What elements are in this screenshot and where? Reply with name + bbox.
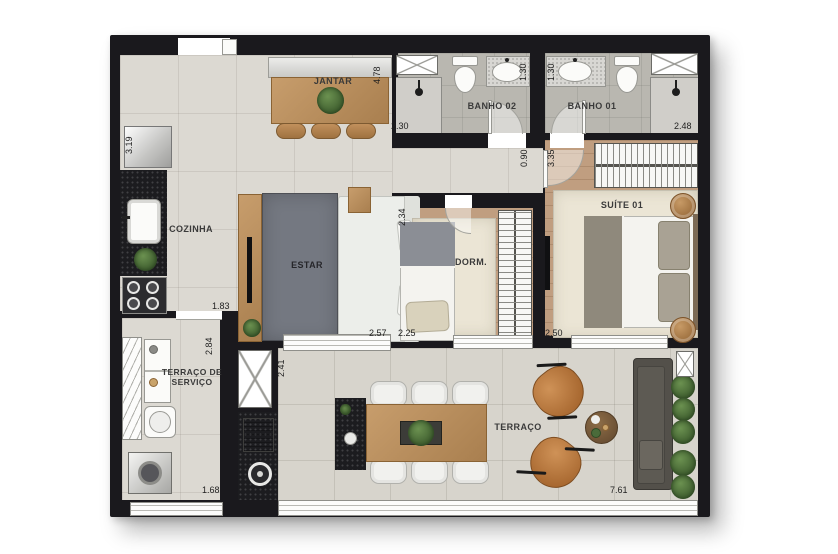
entry-door-leaf — [222, 39, 237, 55]
dim-suite-width: 2.50 — [545, 328, 563, 338]
window-terraco-bottom — [278, 500, 698, 516]
dim-banho02-width: 2.30 — [391, 121, 409, 131]
room-label-jantar: JANTAR — [290, 76, 376, 87]
room-label-banho01: BANHO 01 — [552, 101, 632, 112]
dim-servico-depth: 2.84 — [204, 327, 214, 355]
stool-2 — [311, 123, 341, 139]
room-label-cozinha: COZINHA — [158, 224, 224, 235]
stove-burner-3 — [127, 297, 140, 310]
bed-suite-blanket — [584, 216, 624, 328]
stove-burner-1 — [127, 281, 140, 294]
shaft-banho01 — [651, 53, 698, 75]
plant-estar — [243, 319, 261, 337]
plant-kitchen — [134, 248, 157, 271]
side-table — [348, 187, 371, 213]
room-label-servico-line2: SERVIÇO — [152, 377, 232, 387]
louver-panel — [122, 337, 142, 440]
faucet-icon-b02 — [505, 58, 509, 62]
side-table-bowl — [591, 428, 601, 438]
bed-suite-pillow-1 — [658, 221, 690, 270]
window-suite-terraco — [571, 335, 668, 349]
laundry-tank-basin — [149, 411, 171, 433]
counter-plate — [344, 432, 357, 445]
terrace-plant-5 — [671, 475, 695, 499]
dim-suite-depth: 3.35 — [546, 141, 556, 167]
terrace-plant-1 — [671, 375, 695, 399]
shower-arm-b01 — [675, 80, 677, 89]
shower-head-icon-b02 — [415, 88, 423, 96]
dim-dorm-depth: 2.34 — [397, 198, 407, 226]
dim-fridge-niche: 3.19 — [124, 124, 134, 154]
closet-suite — [594, 143, 698, 188]
shaft-terraco — [676, 351, 694, 377]
floorplan-canvas: JANTAR COZINHA TERRAÇO DE SERVIÇO ESTAR — [0, 0, 838, 554]
terrace-plant-4 — [670, 450, 696, 476]
tv-suite — [545, 236, 550, 290]
closet-dorm — [498, 210, 532, 340]
counter-plant — [340, 404, 351, 415]
pouf-suite-top — [670, 193, 696, 219]
room-label-servico-line1: TERRAÇO DE — [152, 367, 232, 377]
window-servico-bottom — [130, 502, 223, 516]
outdoor-sofa-cushion — [639, 440, 663, 470]
dim-jantar-depth: 4.78 — [372, 52, 382, 84]
door-dorm — [445, 195, 472, 208]
dim-hall-width: 0.90 — [519, 141, 529, 167]
shower-arm-b02 — [418, 80, 420, 89]
stool-1 — [276, 123, 306, 139]
shaft-column — [238, 350, 272, 408]
dim-banho01-side: 1.30 — [546, 55, 556, 81]
terrace-plant-2 — [672, 398, 695, 421]
room-label-suite: SUÍTE 01 — [582, 200, 662, 211]
bar-sink-drain — [257, 471, 263, 477]
tv — [247, 237, 252, 303]
kitchen-sink — [127, 199, 161, 244]
toilet-tank-b01 — [614, 56, 640, 66]
dim-dorm-width: 2.25 — [398, 328, 416, 338]
room-label-banho02: BANHO 02 — [452, 101, 532, 112]
grill — [243, 418, 274, 452]
faucet-icon-b01 — [573, 58, 577, 62]
toilet-tank-b02 — [452, 56, 478, 66]
pouf-suite-bottom — [670, 317, 696, 343]
cabinet-item-1 — [149, 345, 158, 354]
room-label-servico: TERRAÇO DE SERVIÇO — [152, 367, 232, 387]
side-table-cup — [602, 424, 609, 431]
dim-cozinha-width: 1.83 — [212, 301, 230, 311]
stool-3 — [346, 123, 376, 139]
dim-banho01-width: 2.48 — [674, 121, 692, 131]
dim-banho02-side: 1.30 — [518, 55, 528, 81]
side-table-flowers — [591, 415, 600, 424]
planter-plant — [408, 420, 434, 446]
room-label-dorm: DORM. — [441, 257, 501, 268]
dim-servico-width: 1.68 — [202, 485, 220, 495]
room-label-estar: ESTAR — [277, 260, 337, 271]
shower-head-icon-b01 — [672, 88, 680, 96]
terrace-plant-3 — [671, 420, 695, 444]
shaft-banho02 — [396, 55, 438, 75]
bed-suite-pillow-2 — [658, 273, 690, 322]
dim-terraco-width: 7.61 — [610, 485, 628, 495]
servico-opening — [176, 311, 222, 320]
basin-banho01 — [558, 61, 592, 82]
kitchen-faucet-icon — [122, 216, 130, 219]
dim-estar-width: 2.57 — [369, 328, 387, 338]
window-dorm-terraco — [453, 335, 533, 349]
stove-burner-2 — [146, 281, 159, 294]
plant-jantar — [317, 87, 344, 114]
stove-burner-4 — [146, 297, 159, 310]
dim-terraco-depth: 2.41 — [276, 349, 286, 377]
bed-suite-headboard — [693, 214, 698, 330]
washer-door — [138, 461, 162, 485]
